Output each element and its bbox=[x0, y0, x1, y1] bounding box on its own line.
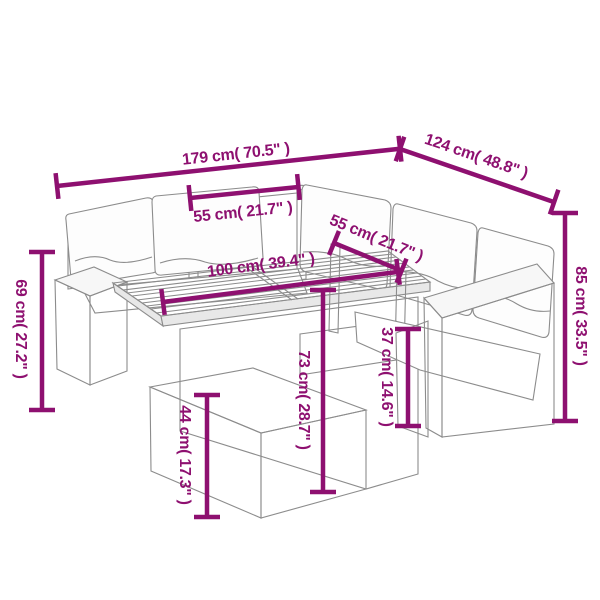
dim-label-armrest-height: 69 cm( 27.2" ) bbox=[12, 279, 28, 378]
dim-label-table-height: 73 cm( 28.7" ) bbox=[295, 350, 311, 449]
dim-line-armrest-height bbox=[29, 252, 55, 410]
dim-label-footstool-height: 44 cm( 17.3" ) bbox=[176, 405, 192, 504]
dim-label-seat-height: 37 cm( 14.6" ) bbox=[378, 327, 394, 426]
dim-label-backrest-height: 85 cm( 33.5" ) bbox=[572, 266, 588, 365]
furniture-illustration bbox=[0, 0, 600, 600]
dimension-diagram-canvas: 179 cm( 70.5" ) 124 cm( 48.8" ) 55 cm( 2… bbox=[0, 0, 600, 600]
